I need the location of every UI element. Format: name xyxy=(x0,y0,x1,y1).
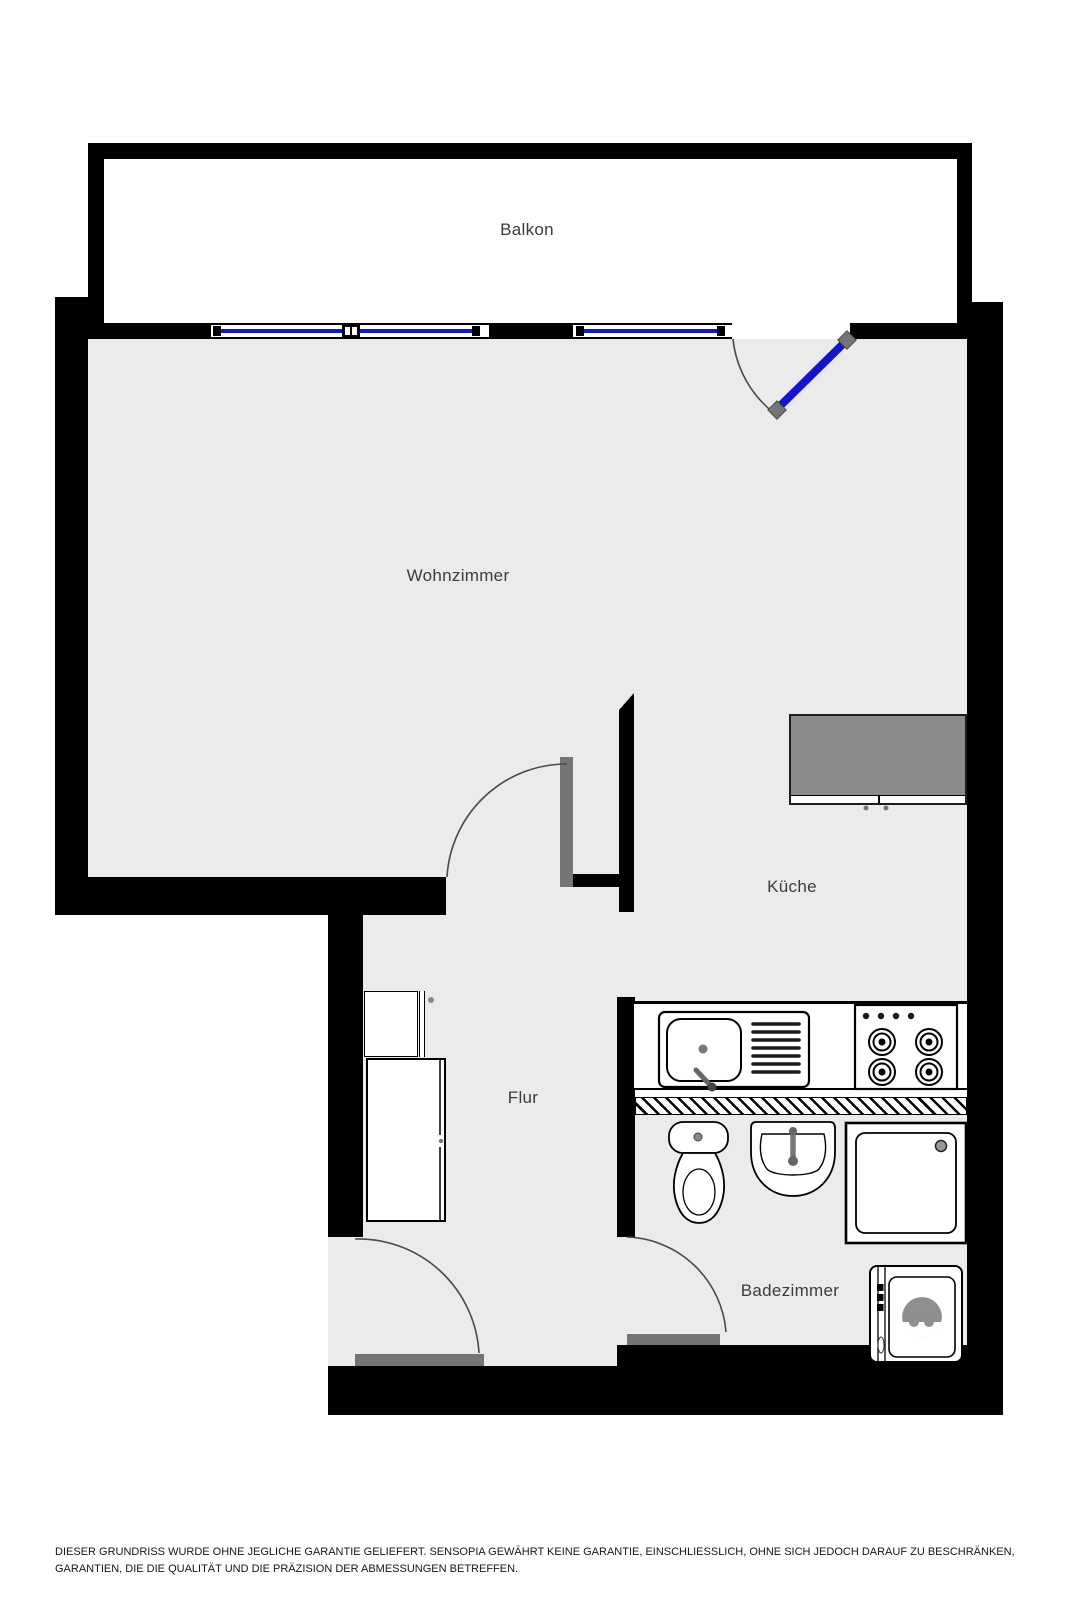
stove-icon xyxy=(855,1005,957,1089)
room-label-kueche: Küche xyxy=(767,877,817,897)
room-label-flur: Flur xyxy=(508,1088,538,1108)
bathroom-sink-icon xyxy=(751,1122,835,1196)
door-arc-entry xyxy=(355,1239,479,1353)
door-arc-bathroom xyxy=(627,1237,726,1332)
shower-icon xyxy=(846,1123,966,1243)
balcony-door-icon xyxy=(768,331,856,419)
sideboard-knob xyxy=(864,806,869,811)
sideboard-knob xyxy=(884,806,889,811)
wardrobe-knob xyxy=(428,997,434,1003)
disclaimer-text: DIESER GRUNDRISS WURDE OHNE JEGLICHE GAR… xyxy=(55,1544,1020,1577)
kitchen-sink-icon xyxy=(659,1012,809,1092)
door-arc-living-hall xyxy=(447,764,567,877)
fixtures-layer xyxy=(0,0,1067,1600)
room-label-badezimmer: Badezimmer xyxy=(741,1281,839,1301)
wardrobe-large-knob xyxy=(439,1139,443,1143)
washing-machine-icon xyxy=(870,1266,962,1362)
toilet-icon xyxy=(669,1122,728,1223)
room-label-balkon: Balkon xyxy=(500,220,554,240)
room-label-wohnzimmer: Wohnzimmer xyxy=(407,566,510,586)
door-arc-balcony xyxy=(733,339,774,413)
floor-plan: Balkon Wohnzimmer Küche Flur Badezimmer … xyxy=(0,0,1067,1600)
